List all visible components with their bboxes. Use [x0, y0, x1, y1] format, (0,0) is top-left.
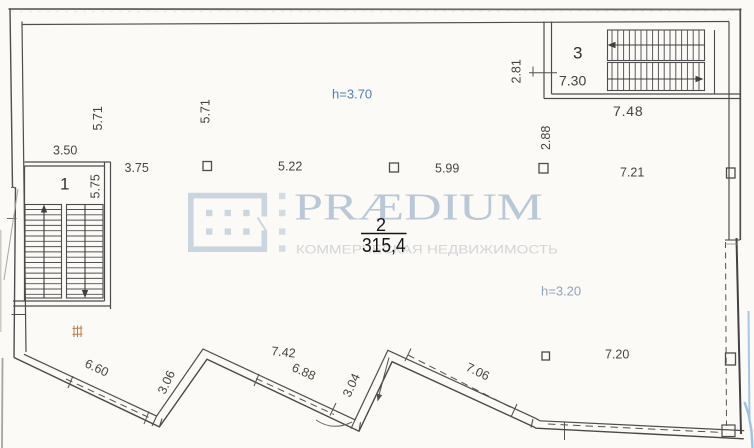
svg-text:3.75: 3.75 — [125, 161, 149, 175]
svg-text:7.21: 7.21 — [620, 166, 644, 180]
svg-text:7.20: 7.20 — [605, 348, 629, 362]
svg-text:3.06: 3.06 — [155, 368, 178, 396]
svg-text:7.06: 7.06 — [464, 360, 492, 383]
svg-text:КОММЕРЧЕСКАЯ НЕДВИЖИМОСТЬ: КОММЕРЧЕСКАЯ НЕДВИЖИМОСТЬ — [296, 243, 558, 257]
svg-text:315,4: 315,4 — [362, 235, 406, 257]
svg-text:5.99: 5.99 — [435, 162, 459, 176]
svg-text:7.48: 7.48 — [613, 103, 643, 119]
svg-text:5.71: 5.71 — [91, 106, 105, 130]
svg-text:2: 2 — [376, 215, 386, 235]
svg-text:3.04: 3.04 — [340, 371, 363, 399]
svg-text:6.88: 6.88 — [290, 360, 318, 383]
svg-text:2.88: 2.88 — [539, 126, 553, 150]
svg-text:5.75: 5.75 — [89, 174, 103, 198]
svg-text:h=3.20: h=3.20 — [541, 284, 581, 299]
svg-text:6.60: 6.60 — [83, 357, 111, 380]
svg-text:h=3.70: h=3.70 — [332, 87, 372, 102]
svg-text:7.30: 7.30 — [559, 73, 586, 89]
svg-text:5.22: 5.22 — [278, 160, 302, 174]
svg-text:PRÆDIUM: PRÆDIUM — [294, 187, 543, 229]
svg-text:1: 1 — [60, 175, 69, 194]
svg-text:2.81: 2.81 — [510, 59, 524, 83]
svg-text:7.42: 7.42 — [271, 344, 297, 360]
svg-text:3.50: 3.50 — [53, 144, 77, 158]
svg-text:3: 3 — [573, 44, 582, 63]
svg-text:5.71: 5.71 — [199, 99, 213, 123]
